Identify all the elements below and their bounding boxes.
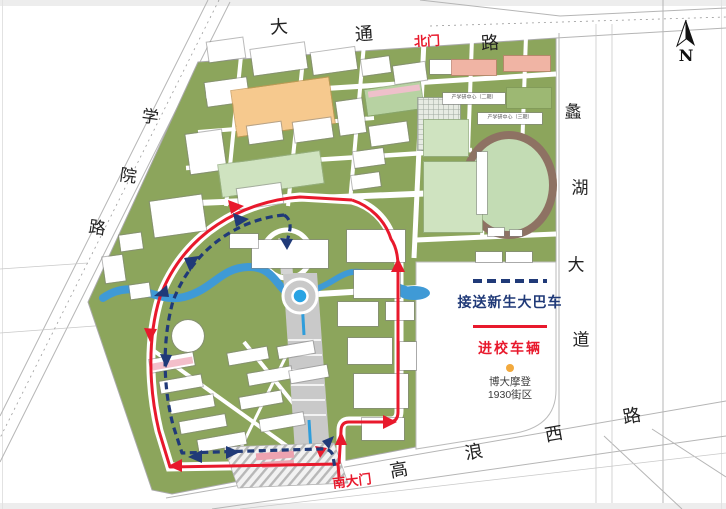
- road-bottom-char: 路: [622, 407, 643, 428]
- routes-layer: [0, 0, 726, 509]
- building-label: 产学研中心（二期）: [451, 96, 496, 101]
- bus-route: [165, 215, 335, 469]
- legend-bus-label: 接送新生大巴车: [446, 292, 574, 312]
- vehicle-route-arrows: [144, 200, 405, 472]
- road-bottom-char: 高: [389, 461, 410, 482]
- bus-route-arrows: [154, 213, 334, 463]
- road-top-char: 通: [354, 25, 373, 44]
- poi-marker-icon: [506, 364, 514, 372]
- road-left-char: 路: [87, 219, 106, 238]
- road-right-char: 道: [573, 333, 590, 350]
- road-top-char: 大: [269, 18, 288, 37]
- vehicle-route: [151, 197, 398, 477]
- road-left-char: 学: [140, 108, 159, 127]
- road-left-char: 院: [118, 167, 137, 186]
- road-bottom-char: 西: [544, 425, 565, 446]
- legend-vehicle-line: [473, 325, 547, 328]
- legend-bus-line: [473, 279, 547, 283]
- north-gate-label: 北门: [414, 34, 441, 48]
- road-right-char: 大: [568, 258, 585, 275]
- road-right-char: 湖: [572, 181, 589, 198]
- legend: 接送新生大巴车 进校车辆: [446, 279, 574, 358]
- compass-north-label: N: [677, 46, 695, 65]
- building-label: 产学研中心（三期）: [487, 116, 532, 121]
- road-top-char: 路: [480, 34, 499, 53]
- legend-vehicle-label: 进校车辆: [446, 338, 574, 358]
- road-right-char: 蠡: [565, 105, 582, 122]
- poi-name-line1: 博大摩登: [466, 376, 554, 389]
- campus-map: 接送新生大巴车 进校车辆 博大摩登 1930街区 N 大通北门路学院路蠡湖大道高…: [0, 0, 726, 509]
- road-bottom-char: 浪: [464, 443, 485, 464]
- poi-name-line2: 1930街区: [466, 389, 554, 402]
- poi-1930-block: 博大摩登 1930街区: [466, 364, 554, 401]
